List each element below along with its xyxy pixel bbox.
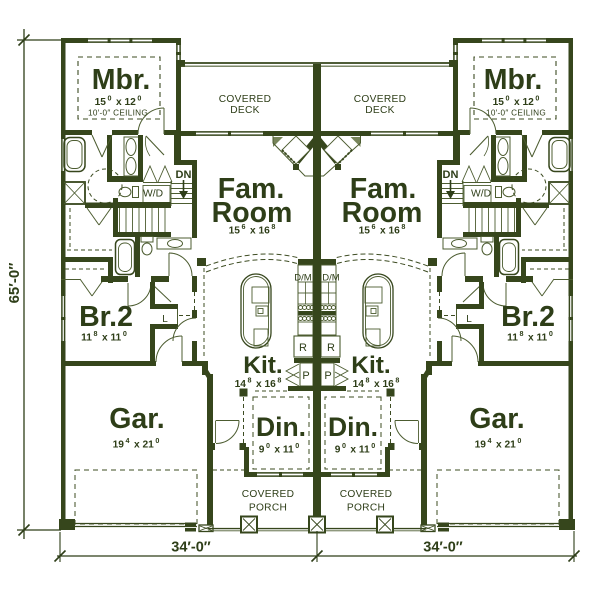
svg-text:DN: DN bbox=[176, 169, 192, 181]
svg-text:Gar.: Gar. bbox=[469, 403, 524, 435]
svg-text:D/M: D/M bbox=[322, 273, 340, 284]
svg-text:Br.2: Br.2 bbox=[501, 301, 555, 333]
svg-text:P: P bbox=[324, 370, 331, 382]
svg-text:Gar.: Gar. bbox=[109, 403, 164, 435]
svg-text:COVERED: COVERED bbox=[340, 489, 392, 500]
svg-text:DECK: DECK bbox=[365, 105, 395, 116]
svg-text:Din.: Din. bbox=[328, 412, 378, 442]
svg-text:PORCH: PORCH bbox=[249, 503, 287, 514]
svg-text:DECK: DECK bbox=[230, 105, 260, 116]
svg-text:34′-0″: 34′-0″ bbox=[423, 540, 462, 556]
svg-text:Room: Room bbox=[342, 197, 423, 229]
svg-text:R: R bbox=[299, 342, 307, 354]
svg-text:D/M: D/M bbox=[294, 273, 312, 284]
svg-text:R: R bbox=[327, 342, 335, 354]
svg-text:Room: Room bbox=[212, 197, 293, 229]
svg-text:65′-0″: 65′-0″ bbox=[6, 263, 23, 304]
svg-text:W/D: W/D bbox=[143, 189, 163, 200]
svg-text:10′-0″ CEILING: 10′-0″ CEILING bbox=[88, 109, 148, 118]
svg-text:P: P bbox=[302, 370, 309, 382]
svg-text:Kit.: Kit. bbox=[351, 352, 390, 379]
svg-text:Din.: Din. bbox=[256, 412, 306, 442]
svg-text:DN: DN bbox=[443, 169, 459, 181]
svg-text:L: L bbox=[162, 314, 168, 325]
svg-text:COVERED: COVERED bbox=[354, 94, 406, 105]
svg-text:34′-0″: 34′-0″ bbox=[171, 540, 210, 556]
svg-text:COVERED: COVERED bbox=[219, 94, 271, 105]
svg-text:PORCH: PORCH bbox=[347, 503, 385, 514]
svg-text:COVERED: COVERED bbox=[242, 489, 294, 500]
svg-text:W/D: W/D bbox=[471, 189, 491, 200]
svg-text:Mbr.: Mbr. bbox=[92, 64, 151, 96]
svg-text:L: L bbox=[466, 314, 472, 325]
svg-text:10′-0″ CEILING: 10′-0″ CEILING bbox=[486, 109, 546, 118]
svg-text:Mbr.: Mbr. bbox=[484, 64, 543, 96]
